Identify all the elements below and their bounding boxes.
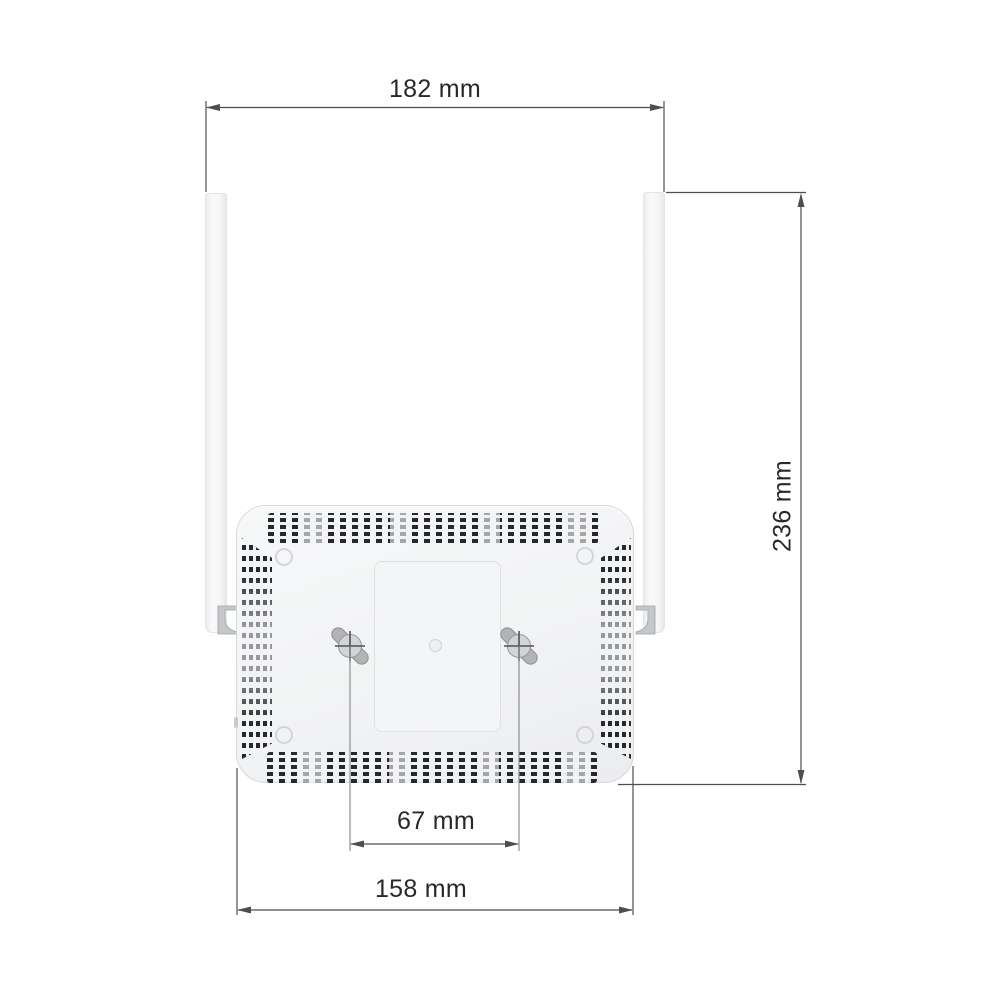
arrow-left-icon [350, 841, 364, 848]
arrow-left-icon [237, 907, 251, 914]
dimension-label-overall-height: 236 mm [771, 460, 796, 552]
arrow-up-icon [798, 193, 805, 207]
rubber-foot [576, 547, 594, 565]
vent-grille-left [242, 538, 272, 759]
vent-grille-top [268, 513, 599, 543]
arrow-right-icon [619, 907, 633, 914]
dimension-top-182 [206, 101, 664, 192]
antenna-left [205, 193, 227, 633]
rubber-foot [576, 726, 594, 744]
dimension-label-mount-hole-spacing: 67 mm [356, 809, 516, 834]
router-body [236, 505, 634, 783]
side-slot [234, 717, 238, 728]
rubber-foot [275, 548, 293, 566]
dimension-overlay [0, 0, 1000, 1000]
vent-grille-right [601, 538, 631, 759]
rubber-foot [275, 726, 293, 744]
vent-grille-bottom [267, 752, 597, 783]
arrow-right-icon [650, 104, 664, 111]
antenna-hinge-right-icon [634, 601, 660, 637]
arrow-left-icon [206, 104, 220, 111]
antenna-right [643, 192, 665, 633]
arrow-right-icon [505, 841, 519, 848]
router-dimension-diagram: 182 mm 236 mm 67 mm 158 mm [0, 0, 1000, 1000]
center-hole [429, 639, 442, 652]
dimension-label-body-width: 158 mm [341, 877, 501, 902]
arrow-down-icon [798, 770, 805, 784]
dimension-label-overall-width: 182 mm [355, 77, 515, 102]
